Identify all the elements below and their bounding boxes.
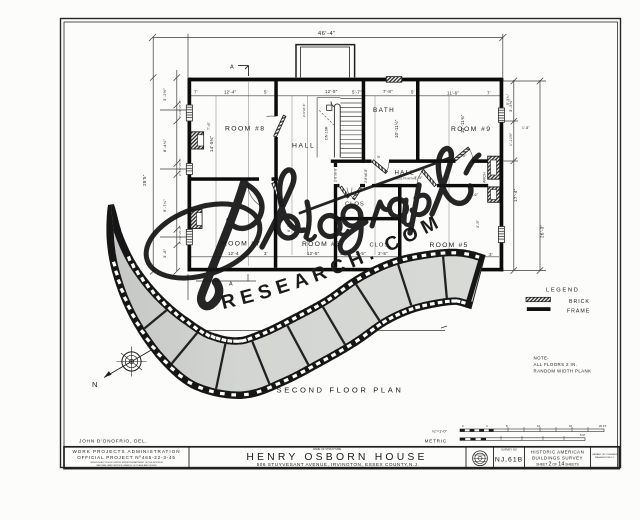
svg-text:BUILDINGS SURVEY: BUILDINGS SURVEY <box>532 455 583 460</box>
svg-text:NATIONAL PARK SERVICE, BRANCH: NATIONAL PARK SERVICE, BRANCH OF PLANS A… <box>96 464 157 467</box>
svg-text:DN 16R: DN 16R <box>325 126 329 140</box>
svg-text:1'-10½": 1'-10½" <box>509 132 513 146</box>
svg-text:NAME OF STRUCTURE: NAME OF STRUCTURE <box>313 447 342 451</box>
svg-text:LIBRARY OF CONGRESS: LIBRARY OF CONGRESS <box>592 453 619 456</box>
svg-text:A: A <box>229 282 233 288</box>
svg-text:NOTE-: NOTE- <box>534 356 550 361</box>
svg-text:12: 12 <box>537 424 541 428</box>
svg-text:11'-6": 11'-6" <box>447 91 459 96</box>
svg-text:2'-10"x5'-0": 2'-10"x5'-0" <box>178 225 182 244</box>
svg-text:NJ,61B: NJ,61B <box>495 457 523 464</box>
svg-text:14'-5¾": 14'-5¾" <box>209 136 214 152</box>
svg-text:10'-11½": 10'-11½" <box>394 119 399 138</box>
svg-text:12'-5": 12'-5" <box>325 89 338 94</box>
svg-text:JOHN D'ONOFRIO, DEL.: JOHN D'ONOFRIO, DEL. <box>79 439 148 445</box>
svg-text:3': 3' <box>489 252 493 257</box>
svg-text:12'-4": 12'-4" <box>224 90 237 95</box>
svg-text:UNDER DIRECTION OF UNITED STAT: UNDER DIRECTION OF UNITED STATES DEPARTM… <box>90 461 163 464</box>
svg-text:5 M.: 5 M. <box>580 433 586 437</box>
svg-text:¼"=1'-0": ¼"=1'-0" <box>432 429 448 434</box>
svg-text:N: N <box>92 380 97 389</box>
svg-text:26'-3": 26'-3" <box>539 224 544 238</box>
svg-text:2'-10"x5'-0": 2'-10"x5'-0" <box>178 157 182 176</box>
svg-text:WORK PROJECTS ADMINISTRATION: WORK PROJECTS ADMINISTRATION <box>72 449 180 454</box>
svg-text:ROOM #8: ROOM #8 <box>225 126 265 133</box>
svg-text:2'-8"x6'-8": 2'-8"x6'-8" <box>364 169 368 183</box>
svg-text:OFFICIAL PROJECT Nº465-22-3-45: OFFICIAL PROJECT Nº465-22-3-45 <box>77 455 175 460</box>
svg-text:ROOM #6: ROOM #6 <box>302 241 341 248</box>
svg-text:5': 5' <box>411 90 415 95</box>
svg-text:FRAME: FRAME <box>567 308 590 314</box>
svg-text:LEGEND: LEGEND <box>546 288 579 294</box>
svg-text:5': 5' <box>264 90 268 95</box>
svg-text:5'-5¾": 5'-5¾" <box>506 93 510 105</box>
svg-text:20 FT.: 20 FT. <box>599 424 607 428</box>
svg-text:METRIC: METRIC <box>425 438 447 443</box>
svg-text:HALL: HALL <box>292 143 315 150</box>
svg-text:7': 7' <box>194 90 198 95</box>
svg-text:2'-6"x6'-6": 2'-6"x6'-6" <box>302 104 306 117</box>
svg-text:1'-8": 1'-8" <box>522 126 530 130</box>
svg-text:BATH: BATH <box>373 107 395 114</box>
svg-text:SECOND FLOOR PLAN: SECOND FLOOR PLAN <box>277 386 404 395</box>
svg-text:3'-2½": 3'-2½" <box>162 88 167 101</box>
svg-text:9'-7¼": 9'-7¼" <box>162 199 167 212</box>
svg-text:12'-5": 12'-5" <box>307 251 320 256</box>
svg-text:12'-4: 12'-4 <box>228 251 239 256</box>
svg-text:17'-4": 17'-4" <box>513 188 518 202</box>
svg-text:A: A <box>230 64 234 70</box>
svg-text:ROOM #5: ROOM #5 <box>430 242 469 249</box>
svg-text:2'-8"x6'-8": 2'-8"x6'-8" <box>334 168 338 182</box>
svg-text:WASHINGTON D.C.: WASHINGTON D.C. <box>595 456 615 459</box>
svg-text:3'-5": 3'-5" <box>476 219 480 228</box>
svg-text:8'-4¾": 8'-4¾" <box>162 139 167 152</box>
svg-text:16: 16 <box>569 424 573 428</box>
svg-text:ALL FLOORS 2 IN.: ALL FLOORS 2 IN. <box>534 362 578 367</box>
svg-text:506 STUYVESANT AVENUE, IRVINGT: 506 STUYVESANT AVENUE, IRVINGTON, ESSEX … <box>257 462 420 467</box>
svg-text:3'-8": 3'-8" <box>162 248 167 258</box>
svg-text:5': 5' <box>377 155 381 158</box>
svg-text:46'-4": 46'-4" <box>318 31 336 37</box>
svg-text:2'-10"x5'-0": 2'-10"x5'-0" <box>178 99 182 118</box>
svg-text:28'5": 28'5" <box>142 174 147 186</box>
svg-text:7'-8": 7'-8" <box>383 89 393 94</box>
svg-text:ROOM #9: ROOM #9 <box>451 126 491 133</box>
svg-text:5'-7": 5'-7" <box>352 90 362 95</box>
svg-text:3': 3' <box>264 251 268 256</box>
svg-text:BRICK: BRICK <box>569 299 590 305</box>
svg-text:RANDOM WIDTH PLANK: RANDOM WIDTH PLANK <box>534 369 592 374</box>
svg-text:ARCH: ARCH <box>483 172 487 183</box>
svg-text:7': 7' <box>487 91 491 96</box>
svg-text:HISTORIC AMERICAN: HISTORIC AMERICAN <box>531 450 585 455</box>
svg-text:SURVEY NO: SURVEY NO <box>501 448 517 452</box>
svg-text:7'-6": 7'-6" <box>207 121 211 130</box>
